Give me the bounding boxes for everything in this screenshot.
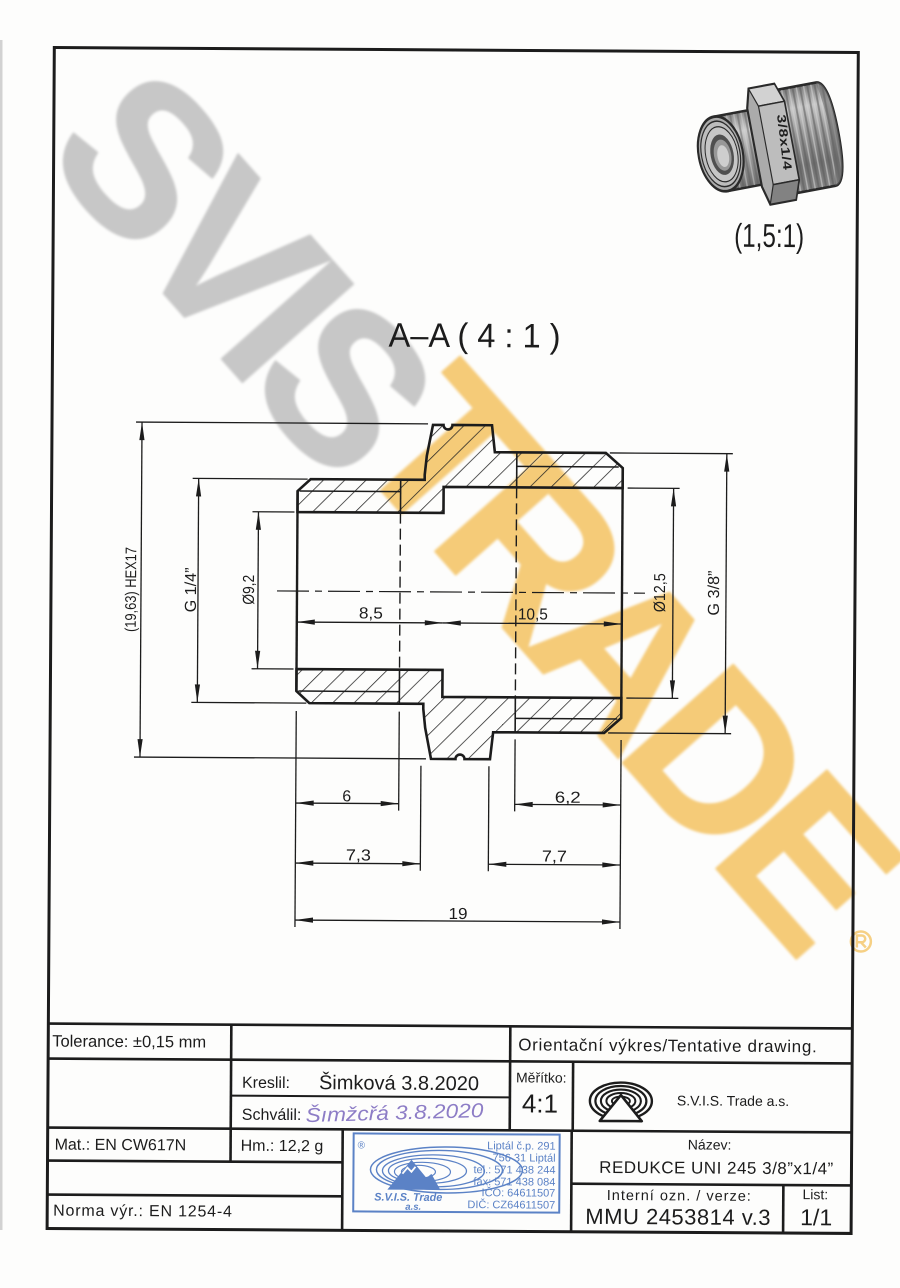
svg-text:List:: List: — [802, 1186, 828, 1202]
svg-text:A–A ( 4 : 1 ): A–A ( 4 : 1 ) — [388, 317, 560, 356]
svg-text:Ø9,2: Ø9,2 — [241, 575, 258, 605]
svg-text:Orientační výkres/Tentative dr: Orientační výkres/Tentative drawing. — [518, 1035, 817, 1056]
svg-text:Tolerance: ±0,15 mm: Tolerance: ±0,15 mm — [52, 1033, 206, 1052]
svg-text:DIČ: CZ64611507: DIČ: CZ64611507 — [467, 1198, 555, 1212]
svg-text:4:1: 4:1 — [522, 1088, 558, 1118]
svg-text:Interní ozn. / verze:: Interní ozn. / verze: — [607, 1188, 752, 1205]
svg-text:1/1: 1/1 — [800, 1204, 832, 1230]
svg-text:a.s.: a.s. — [405, 1202, 421, 1213]
svg-text:Kreslil:: Kreslil: — [242, 1075, 290, 1092]
svg-text:6: 6 — [342, 788, 351, 805]
svg-text:6,2: 6,2 — [555, 790, 581, 807]
svg-text:IČO: 64611507: IČO: 64611507 — [481, 1186, 555, 1199]
svg-text:7,3: 7,3 — [346, 847, 371, 864]
svg-text:19: 19 — [448, 906, 467, 923]
svg-text:8,5: 8,5 — [359, 605, 383, 622]
svg-text:Měřítko:: Měřítko: — [516, 1069, 567, 1085]
svg-text:Mat.: EN CW617N: Mat.: EN CW617N — [55, 1137, 187, 1155]
svg-text:(1,5:1): (1,5:1) — [734, 217, 804, 254]
svg-text:(19,63) HEX17: (19,63) HEX17 — [123, 547, 141, 632]
svg-text:REDUKCE UNI 245 3/8”x1/4”: REDUKCE UNI 245 3/8”x1/4” — [599, 1158, 834, 1178]
svg-text:7,7: 7,7 — [542, 849, 567, 866]
svg-text:Šimková 3.8.2020: Šimková 3.8.2020 — [319, 1071, 479, 1095]
svg-text:Schválil:: Schválil: — [242, 1107, 302, 1124]
svg-text:10,5: 10,5 — [518, 606, 548, 623]
svg-text:Norma výr.: EN 1254-4: Norma výr.: EN 1254-4 — [53, 1203, 233, 1221]
svg-text:Název:: Název: — [688, 1136, 732, 1152]
svg-text:S.V.I.S. Trade a.s.: S.V.I.S. Trade a.s. — [677, 1092, 789, 1109]
svg-text:G 1/4”: G 1/4” — [183, 567, 200, 612]
svg-text:G 3/8”: G 3/8” — [706, 571, 723, 616]
svg-text:MMU 2453814 v.3: MMU 2453814 v.3 — [585, 1204, 771, 1230]
svg-text:tel.: 571 438 244: tel.: 571 438 244 — [473, 1164, 555, 1177]
svg-text:®: ® — [358, 1140, 366, 1151]
svg-text:756 31 Liptál: 756 31 Liptál — [492, 1152, 555, 1164]
svg-text:Hm.: 12,2 g: Hm.: 12,2 g — [241, 1138, 324, 1156]
svg-text:Ø12,5: Ø12,5 — [652, 573, 669, 612]
svg-text:Liptál č.p. 291: Liptál č.p. 291 — [487, 1140, 556, 1152]
